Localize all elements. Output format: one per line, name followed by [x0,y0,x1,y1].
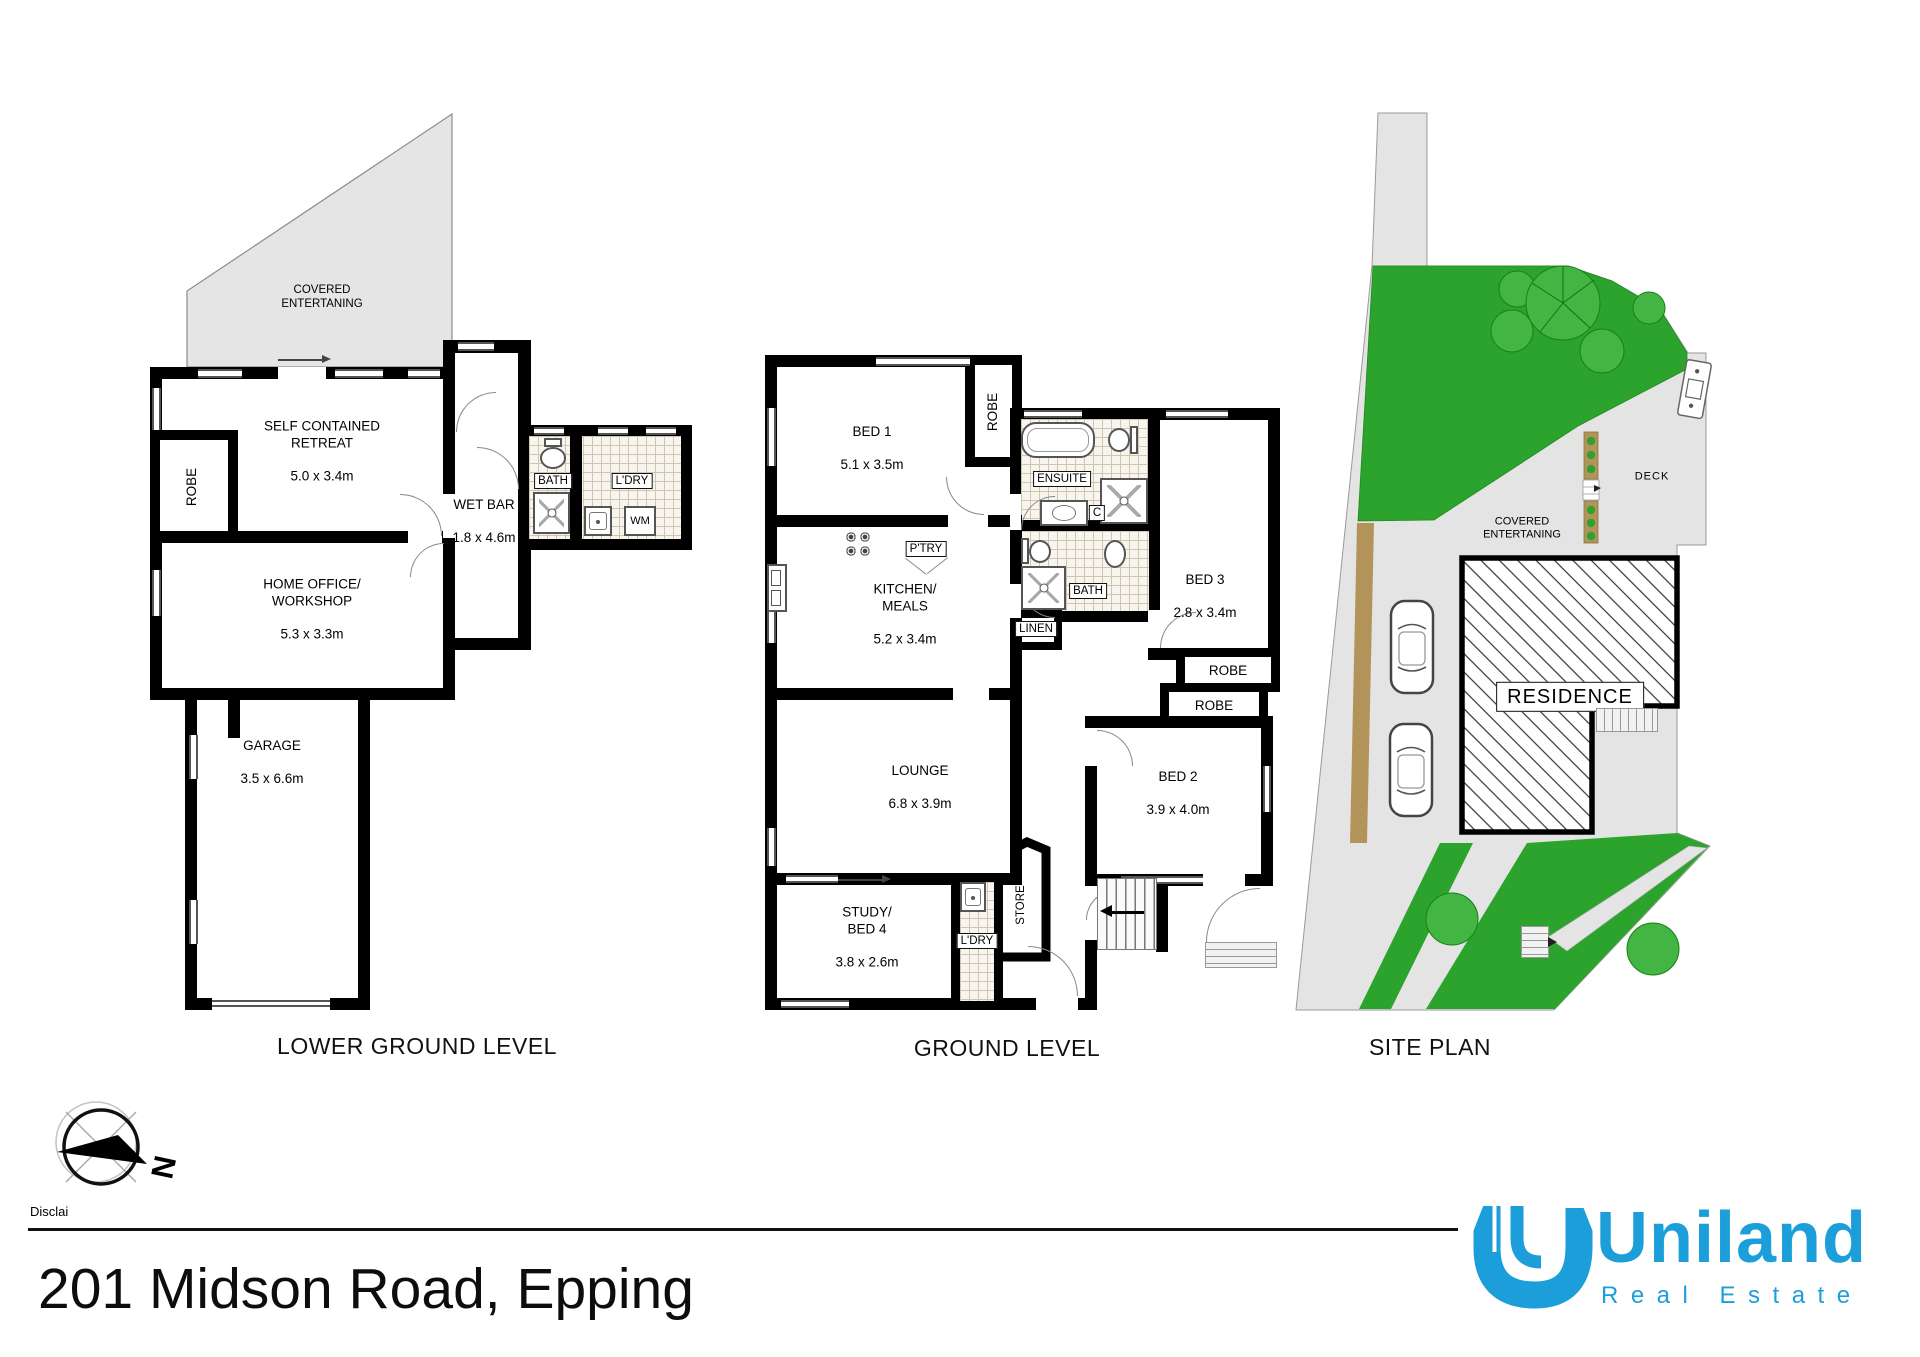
ground-level-title: GROUND LEVEL [914,1035,1100,1062]
laundry-sink-icon [960,882,986,912]
room-name: BED 3 [1173,572,1236,588]
robe-label-lower: ROBE [184,468,200,506]
site-covered-entertaining-label: COVERED ENTERTANING [1483,516,1561,543]
room-name: SELF CONTAINED RETREAT [264,419,380,452]
linen-label: LINEN [1015,621,1057,637]
window [408,369,440,378]
vanity-icon [1040,500,1088,526]
shower-icon [1100,478,1148,524]
window [1024,410,1082,418]
wet-bar-label: WET BAR 1.8 x 4.6m [452,481,515,563]
laundry-label-lower: L'DRY [612,473,653,489]
room-name: BED 2 [1146,769,1209,785]
floorplan-page: WM COVERED ENTERTANING SELF CONTAINED RE… [0,0,1920,1357]
window [1166,410,1228,418]
kitchen-sink-icon [767,564,787,612]
window [534,427,564,435]
kitchen-label: KITCHEN/ MEALS 5.2 x 3.4m [873,566,936,665]
lounge-label: LOUNGE 6.8 x 3.9m [888,747,951,829]
window [598,427,628,435]
lower-ground-title: LOWER GROUND LEVEL [277,1033,557,1060]
room-dims: 1.8 x 4.6m [452,530,515,546]
covered-entertaining-area [187,114,452,367]
room-dims: 6.8 x 3.9m [888,796,951,812]
door-swing-line [838,879,882,881]
garage-door [212,1000,330,1007]
uniland-logo-icon [1473,1204,1593,1295]
door-opening [1036,998,1078,1010]
window [876,357,970,366]
garage-label: GARAGE 3.5 x 6.6m [240,722,303,804]
room-dims: 3.5 x 6.6m [240,771,303,787]
tree-icon [1633,292,1665,324]
retreat-label: SELF CONTAINED RETREAT 5.0 x 3.4m [264,403,380,502]
room-dims: 5.3 x 3.3m [263,626,361,642]
bath-ground-label: BATH [1069,583,1107,599]
bed1-label: BED 1 5.1 x 3.5m [840,408,903,490]
planter-boxes [1583,432,1601,543]
bed2-label: BED 2 3.9 x 4.0m [1146,753,1209,835]
arrow-icon [322,355,331,363]
logo-brand-text: Uniland [1596,1197,1867,1279]
toilet-tank [1021,538,1029,564]
study-label: STUDY/ BED 4 3.8 x 2.6m [835,889,898,988]
room-dims: 3.9 x 4.0m [1146,802,1209,818]
door-opening [278,367,326,379]
window [767,828,776,866]
door-opening [1085,728,1097,766]
tree-icon [1426,893,1478,945]
toilet-tank [1130,426,1138,454]
pantry-label: P'TRY [906,541,947,557]
window [767,408,776,466]
arrow-icon [1548,937,1557,947]
compass-icon [56,1102,147,1184]
washing-machine-icon: WM [624,506,656,536]
window [335,369,383,378]
door-opening [1010,584,1021,618]
tree-icon [1580,329,1624,373]
toilet-icon [540,447,566,469]
door-opening [953,688,989,700]
ensuite-label: ENSUITE [1033,471,1091,487]
laundry-ground-label: L'DRY [957,933,998,949]
room-name: LOUNGE [888,763,951,779]
door-opening [1148,610,1160,648]
room-name: GARAGE [240,738,303,754]
door-swing-line [278,359,322,361]
sink-bowl [771,590,781,606]
address-title: 201 Midson Road, Epping [38,1256,694,1322]
back-steps [1205,942,1277,968]
toilet-tank [544,438,562,447]
bathtub-icon [1021,422,1095,458]
room-name: BED 1 [840,424,903,440]
residence-side-steps [1596,708,1658,732]
room-name: HOME OFFICE/ WORKSHOP [263,577,361,610]
wall [1156,878,1168,952]
logo-tagline-text: Real Estate [1601,1282,1863,1310]
room-name: WET BAR [452,497,515,513]
robe-bed1-label: ROBE [985,393,1001,431]
disclaimer-text: Disclai [30,1204,68,1219]
window [786,875,838,883]
room-dims: 5.0 x 3.4m [264,468,380,484]
wall [443,340,455,380]
tree-icon [1627,923,1679,975]
stove-icon [842,529,874,559]
cupboard-label: C [1089,505,1105,521]
car-icon-driveway-1 [1391,601,1433,693]
room-dims: 3.8 x 2.6m [835,954,898,970]
window [198,369,242,378]
window [781,1000,849,1008]
basin-icon [1104,540,1126,568]
room-name: KITCHEN/ MEALS [873,582,936,615]
window [152,388,161,430]
covered-entertaining-label: COVERED ENTERTANING [281,283,362,311]
room-dims: 2.8 x 3.4m [1173,605,1236,621]
door-opening [948,515,988,527]
wall [443,638,531,650]
window [189,900,198,944]
room-name: STUDY/ BED 4 [835,905,898,938]
bed3-label: BED 3 2.8 x 3.4m [1173,556,1236,638]
site-plan-title: SITE PLAN [1369,1034,1491,1061]
room-dims: 5.2 x 3.4m [873,631,936,647]
door-opening [1010,494,1021,530]
toilet-icon [1029,540,1051,563]
window [646,427,676,435]
arrow-icon [1100,905,1112,917]
window [189,735,198,779]
site-steps [1521,926,1549,958]
window [1263,766,1271,812]
site-road-strip [1372,113,1427,266]
arrow-icon [882,875,891,883]
store-label: STORE [1014,885,1028,924]
wall [518,340,531,436]
robe-bed3-label: ROBE [1209,663,1247,679]
sink-bowl [771,570,781,586]
bath-label-lower: BATH [534,473,572,489]
stairs-direction-line [1112,911,1144,914]
door-opening [1203,874,1245,886]
washing-machine-label: WM [630,515,650,527]
laundry-sink-icon [584,506,612,536]
toilet-icon [1108,428,1130,452]
window [458,342,494,351]
wall [228,688,240,738]
tree-icon [1491,310,1533,352]
home-office-label: HOME OFFICE/ WORKSHOP 5.3 x 3.3m [263,561,361,660]
shower-icon [1021,566,1066,610]
room-dims: 5.1 x 3.5m [840,457,903,473]
shower-icon [533,492,570,534]
car-icon-driveway-2 [1390,724,1432,816]
wall [1085,940,1097,1010]
robe-bed2-label: ROBE [1195,698,1233,714]
divider-line [28,1228,1458,1231]
deck-label: DECK [1635,470,1670,483]
window [152,570,161,616]
